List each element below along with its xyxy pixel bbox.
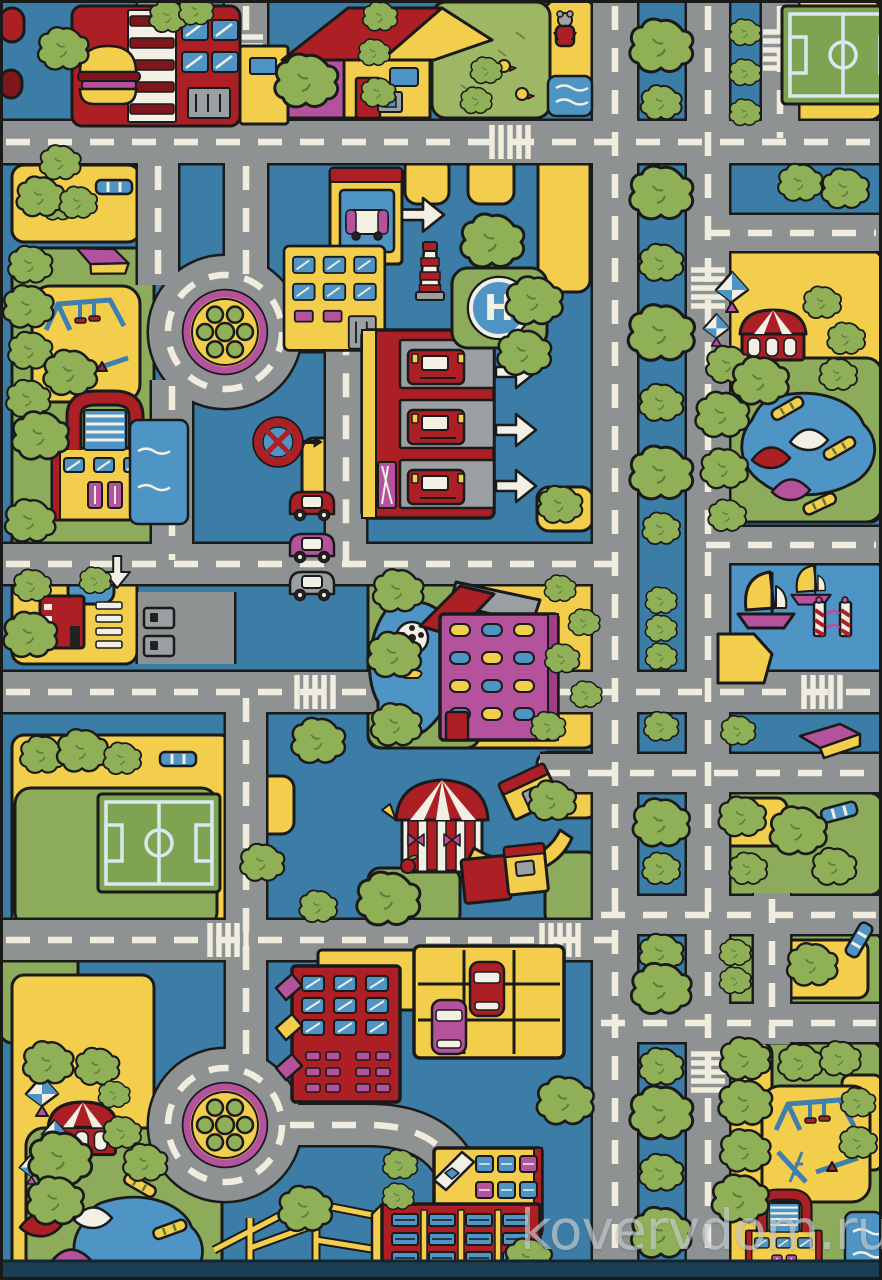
city-block xyxy=(0,8,24,42)
bench xyxy=(160,752,196,766)
tree xyxy=(179,0,214,25)
parked-car xyxy=(432,1000,466,1054)
apartment-building xyxy=(276,950,422,1102)
roundabout-island xyxy=(183,1083,267,1167)
pool xyxy=(130,420,188,524)
rug-city-scene: H xyxy=(0,0,882,1280)
pool xyxy=(548,76,592,116)
teddy-bear xyxy=(554,11,576,46)
fire-station xyxy=(362,330,494,518)
soccer-field xyxy=(98,794,220,892)
soccer-field xyxy=(782,6,882,104)
city-block xyxy=(0,70,22,98)
bench xyxy=(96,180,132,194)
parked-car xyxy=(470,962,504,1016)
play-rug-photo: H kovervdom.ru xyxy=(0,0,882,1280)
city-block xyxy=(538,152,590,292)
carousel xyxy=(740,310,806,360)
roundabout-island xyxy=(183,290,267,374)
